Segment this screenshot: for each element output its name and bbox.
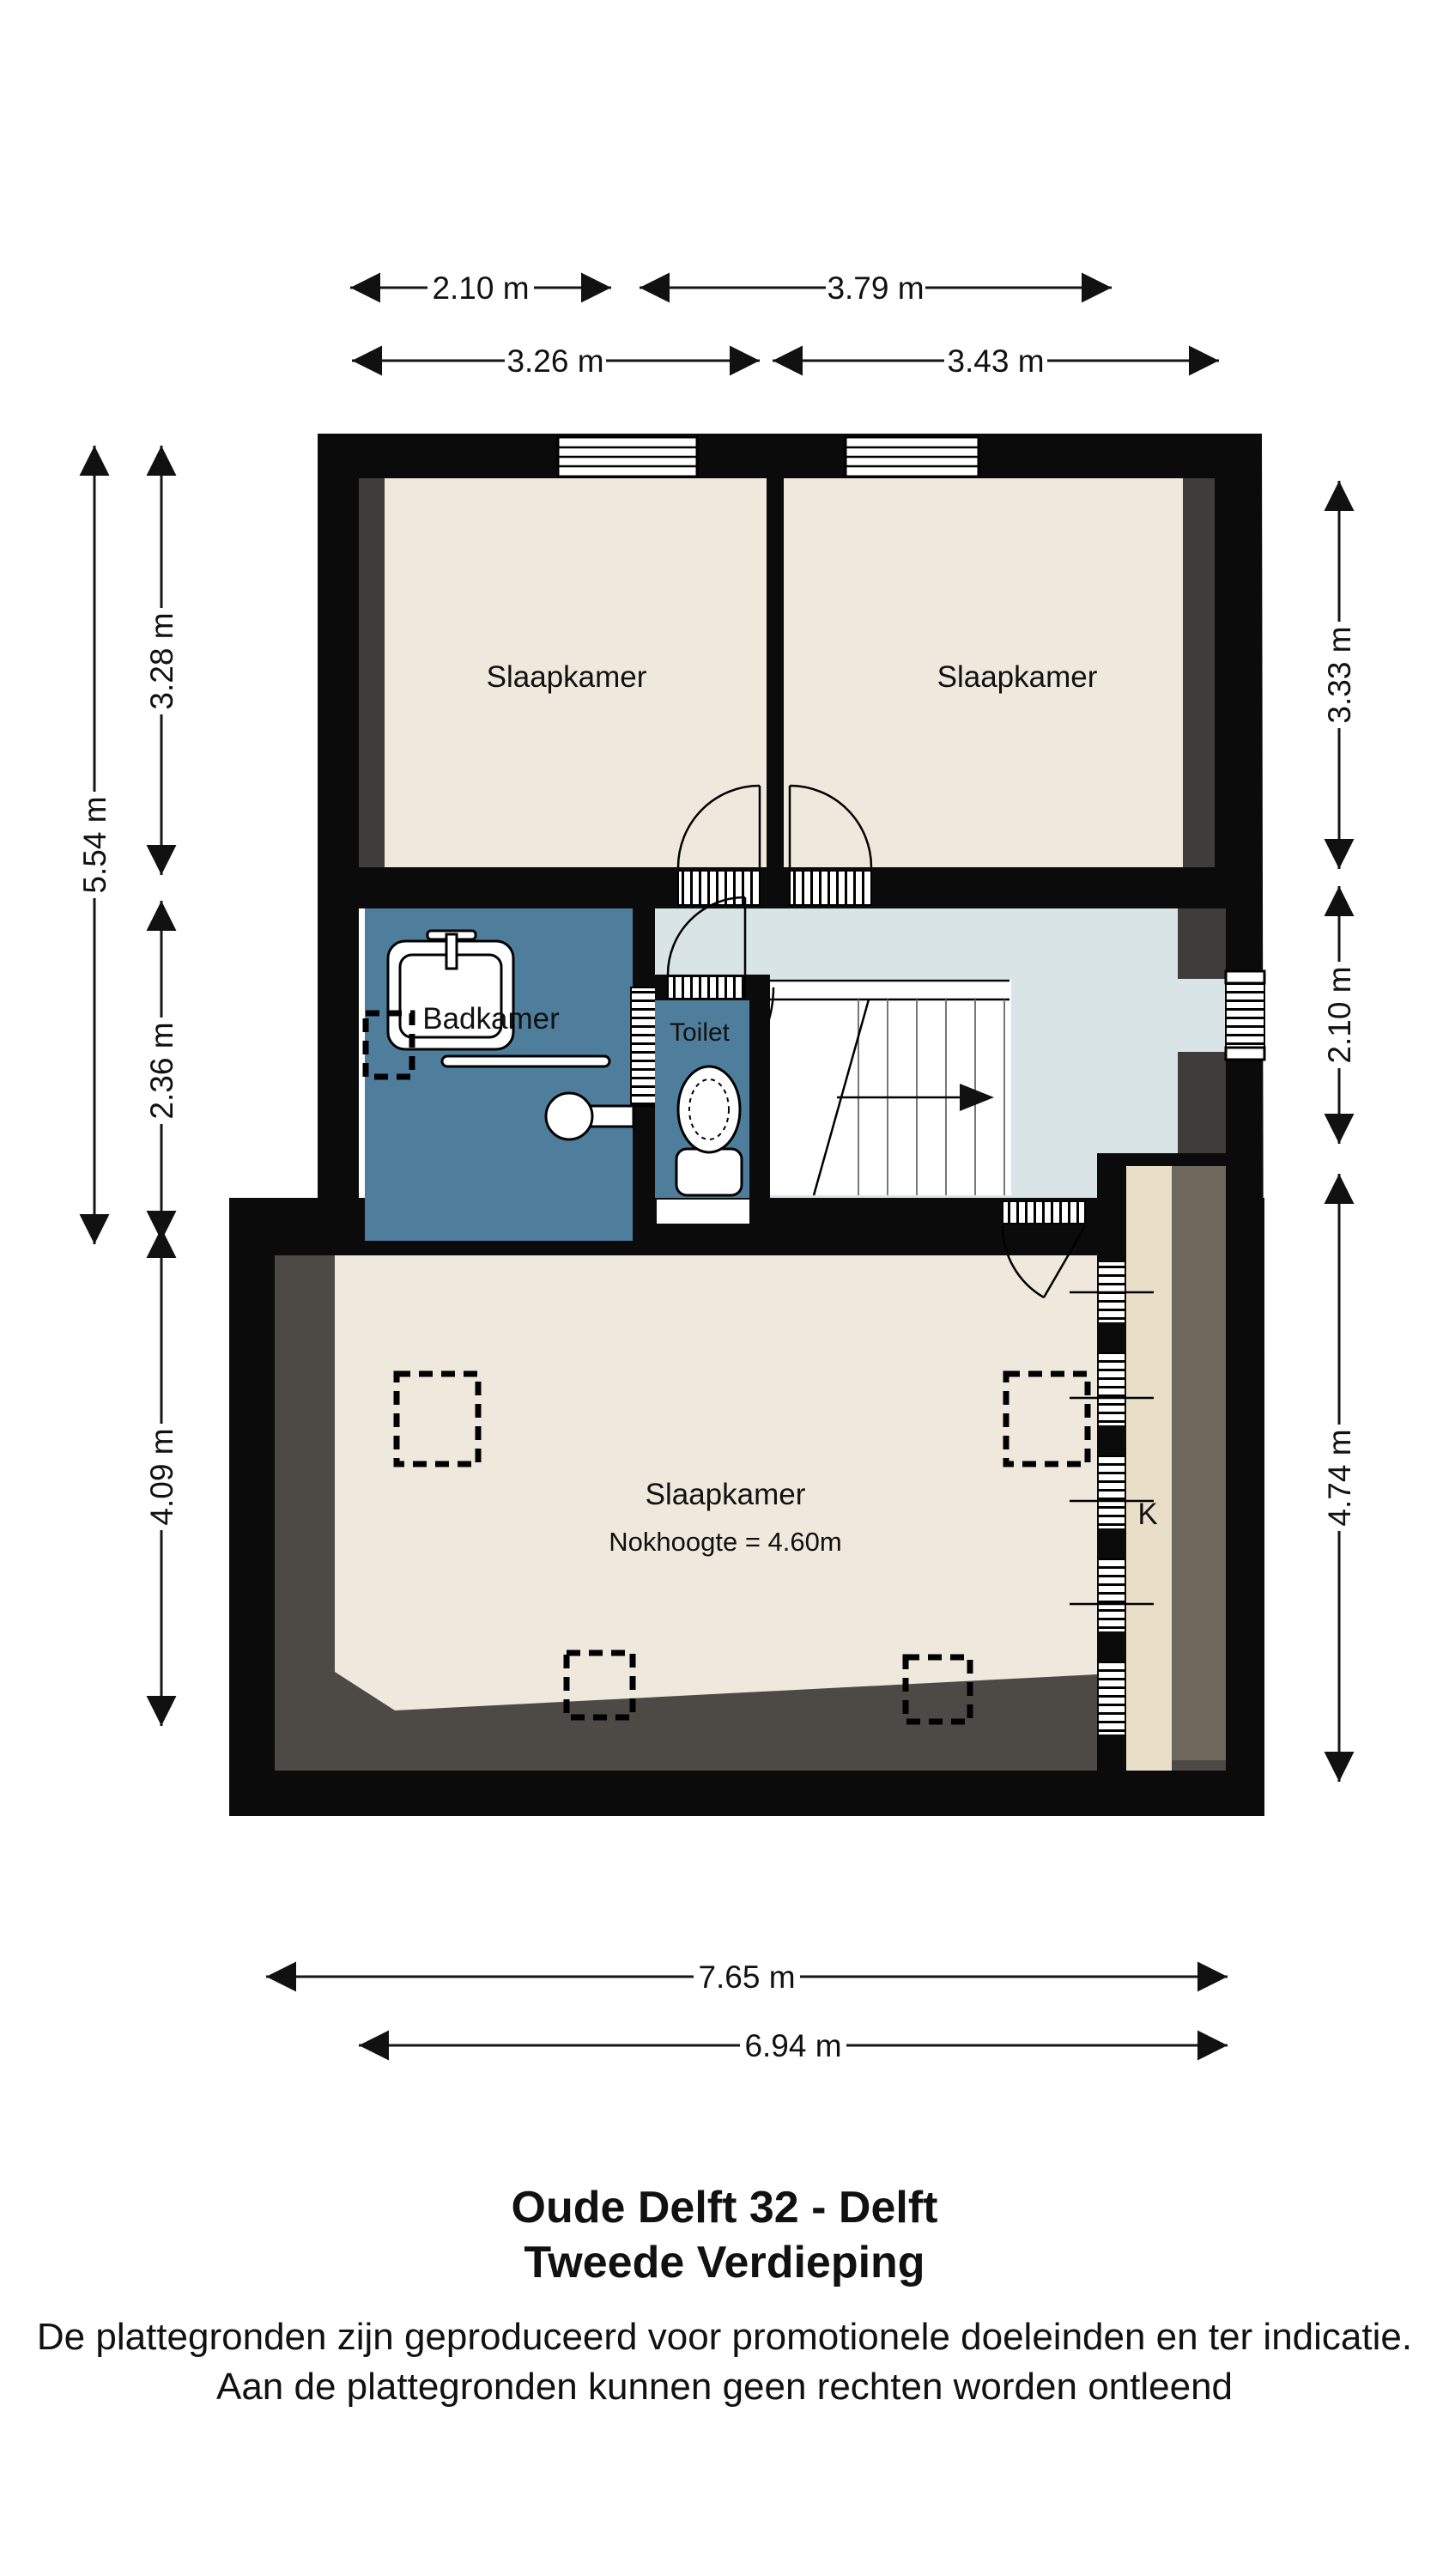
window-top-right [846, 437, 979, 477]
dim-left-3-label: 4.09 m [144, 1428, 179, 1525]
bathroom-label: Badkamer [422, 1002, 560, 1036]
attic-bedroom-label: Slaapkamer [646, 1478, 806, 1511]
disclaimer-line2: Aan de plattegronden kunnen geen rechten… [216, 2366, 1233, 2408]
toilet-right-wall [749, 975, 770, 1198]
boiler-icon [546, 1093, 592, 1139]
top-outer-wall [318, 434, 1262, 478]
dim-left-0: 5.54 m [77, 446, 112, 1244]
dim-left-2: 2.36 m [144, 901, 179, 1241]
floor-plan: Slaapkamer Nokhoogte = 4.60m K Sla [0, 0, 1449, 2576]
bedroom-top-left-label: Slaapkamer [487, 660, 647, 694]
bathroom-door-leaf [631, 987, 657, 1106]
dim-left-1-label: 3.28 m [144, 612, 179, 709]
staircase [768, 979, 1011, 1195]
knee-wall-hatch-3 [1099, 1455, 1125, 1528]
dim-top-2: 3.26 m [352, 343, 760, 379]
boiler-stub [589, 1106, 634, 1127]
radiator-icon [442, 1056, 609, 1066]
attic-door-threshold [1003, 1201, 1085, 1224]
bedroom-left-slope-strip [359, 478, 385, 867]
landing-right-slope-upper [1178, 908, 1226, 979]
dim-left-1: 3.28 m [144, 446, 179, 875]
closet-roof-slope [1172, 1166, 1226, 1760]
window-right [1226, 971, 1264, 1060]
bedrooms-partition-wall [767, 478, 784, 867]
knee-wall-hatch-2 [1099, 1352, 1125, 1425]
bedroom-right-slope-strip [1183, 478, 1215, 867]
dim-right-0: 3.33 m [1322, 481, 1357, 869]
knee-wall-hatch-5 [1099, 1662, 1125, 1735]
dim-top-1-label: 3.79 m [827, 270, 924, 306]
dim-top-3: 3.43 m [773, 343, 1219, 379]
closet-top-wall [1097, 1153, 1226, 1166]
dim-left-3: 4.09 m [144, 1228, 179, 1726]
toilet-door-threshold [668, 976, 745, 999]
dim-right-1-label: 2.10 m [1322, 966, 1357, 1063]
left-outer-wall [318, 434, 359, 1255]
knee-wall-hatch-4 [1099, 1558, 1125, 1631]
dim-top-0: 2.10 m [350, 270, 611, 306]
plan-title-line2: Tweede Verdieping [524, 2238, 925, 2287]
dim-top-0-label: 2.10 m [432, 270, 529, 306]
dim-bottom-1: 6.94 m [359, 2028, 1228, 2063]
attic-block: Slaapkamer Nokhoogte = 4.60m K [229, 1153, 1264, 1816]
toilet-label: Toilet [670, 1018, 731, 1047]
window-top-left [558, 437, 697, 477]
dim-bottom-0-label: 7.65 m [698, 1959, 795, 1995]
caption: Oude Delft 32 - Delft Tweede Verdieping … [37, 2183, 1412, 2408]
dim-right-2-label: 4.74 m [1322, 1429, 1357, 1526]
dim-right-1: 2.10 m [1322, 886, 1357, 1144]
dim-left-0-label: 5.54 m [77, 796, 112, 893]
dim-top-2-label: 3.26 m [506, 343, 603, 379]
toilet-niche [657, 1200, 749, 1224]
dim-left-2-label: 2.36 m [144, 1022, 179, 1119]
bedroom-dividing-wall [359, 867, 1215, 908]
dim-top-1: 3.79 m [640, 270, 1112, 306]
disclaimer-line1: De plattegronden zijn geproduceerd voor … [37, 2316, 1412, 2358]
bedroom-top-right-label: Slaapkamer [937, 660, 1098, 694]
landing-right-slope-lower [1178, 1052, 1226, 1153]
closet-label: K [1137, 1498, 1157, 1531]
dim-bottom-1-label: 6.94 m [744, 2028, 841, 2063]
dim-top-3-label: 3.43 m [947, 343, 1044, 379]
dim-right-2: 4.74 m [1322, 1174, 1357, 1782]
dim-bottom-0: 7.65 m [266, 1959, 1228, 1995]
attic-ridge-height-note: Nokhoogte = 4.60m [609, 1527, 841, 1557]
dim-right-0-label: 3.33 m [1322, 626, 1357, 723]
floor-plan-page: Slaapkamer Nokhoogte = 4.60m K Sla [0, 0, 1449, 2576]
plan-title-line1: Oude Delft 32 - Delft [512, 2183, 938, 2233]
toilet-icon [676, 1066, 742, 1195]
closet-floor [1126, 1166, 1172, 1771]
